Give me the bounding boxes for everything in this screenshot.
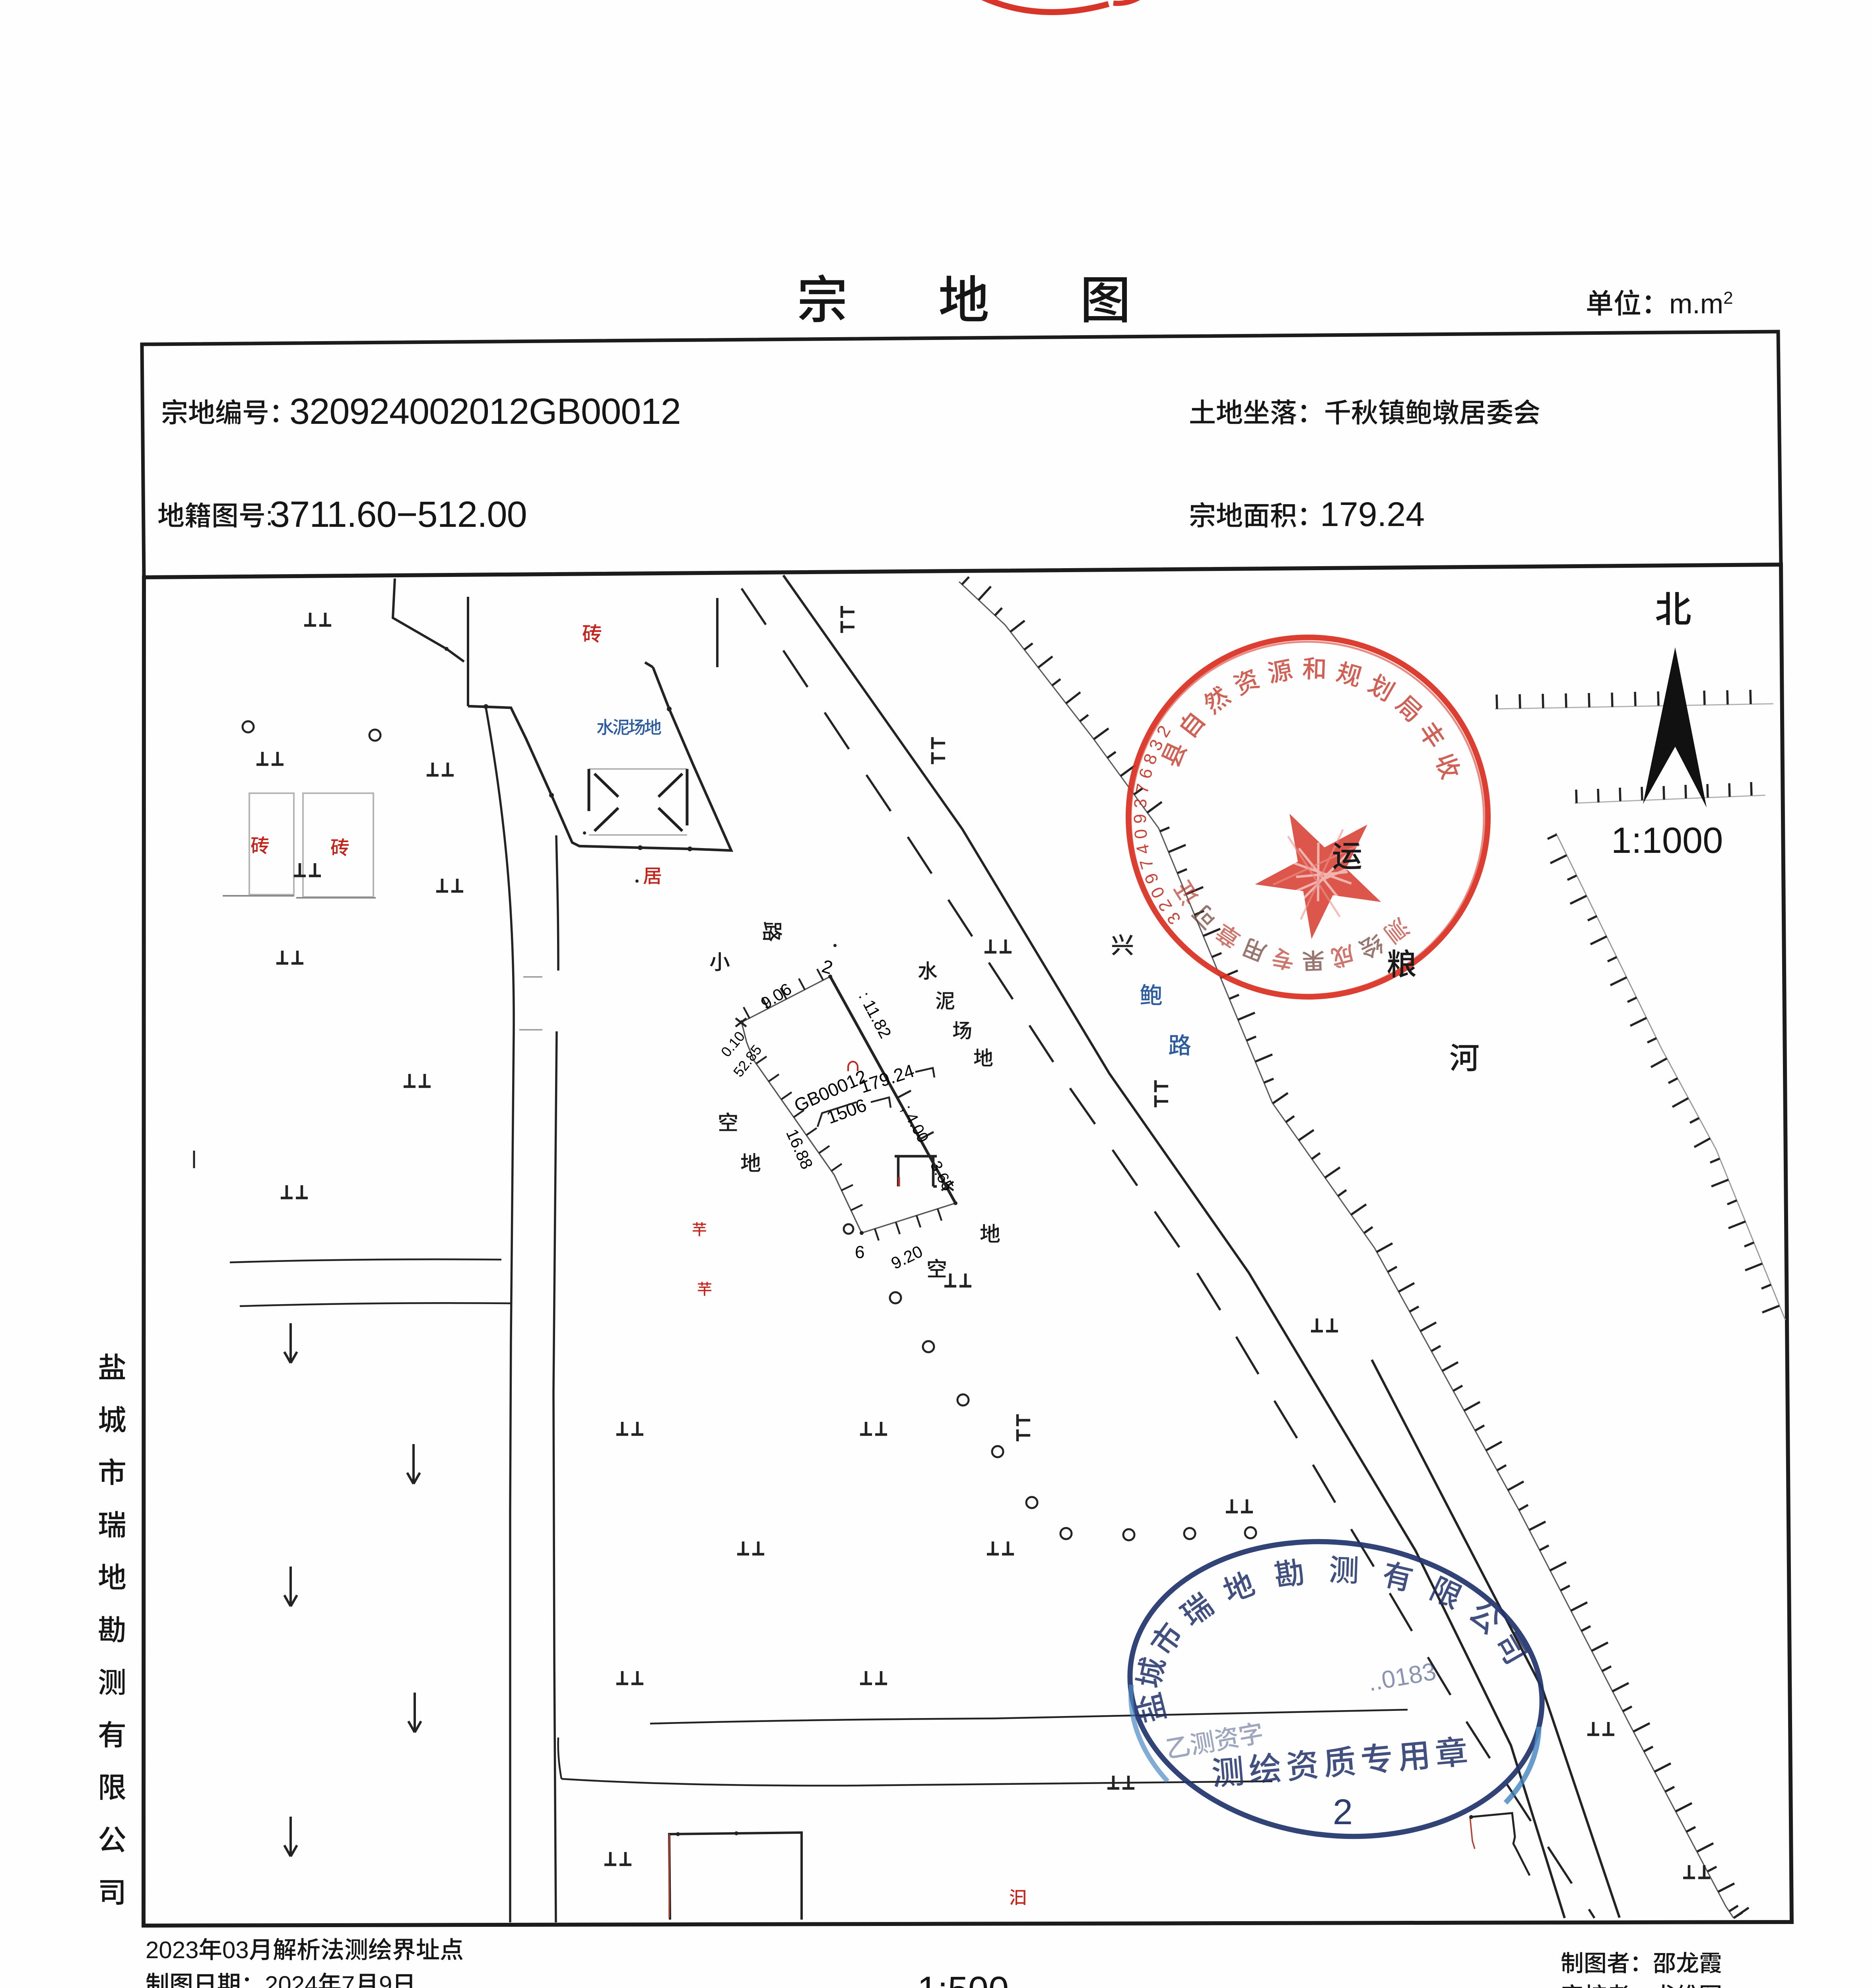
svg-text:3711.60−512.00: 3711.60−512.00 [270, 494, 527, 535]
svg-text:179.24: 179.24 [1320, 495, 1425, 534]
svg-text:1:500: 1:500 [917, 1969, 1009, 1988]
svg-text:9: 9 [379, 1971, 392, 1988]
svg-text:9: 9 [1130, 814, 1150, 824]
svg-text:03: 03 [222, 1937, 249, 1963]
svg-text:2: 2 [1333, 1792, 1353, 1832]
svg-text:3: 3 [1130, 798, 1151, 809]
svg-text:2023: 2023 [146, 1937, 198, 1963]
svg-text:6: 6 [855, 1242, 864, 1262]
svg-text:2024: 2024 [265, 1971, 318, 1988]
svg-text:320924002012GB00012: 320924002012GB00012 [289, 391, 681, 432]
svg-text:1:1000: 1:1000 [1611, 820, 1723, 861]
svg-text:7: 7 [342, 1971, 355, 1988]
svg-text:0: 0 [1131, 828, 1151, 840]
